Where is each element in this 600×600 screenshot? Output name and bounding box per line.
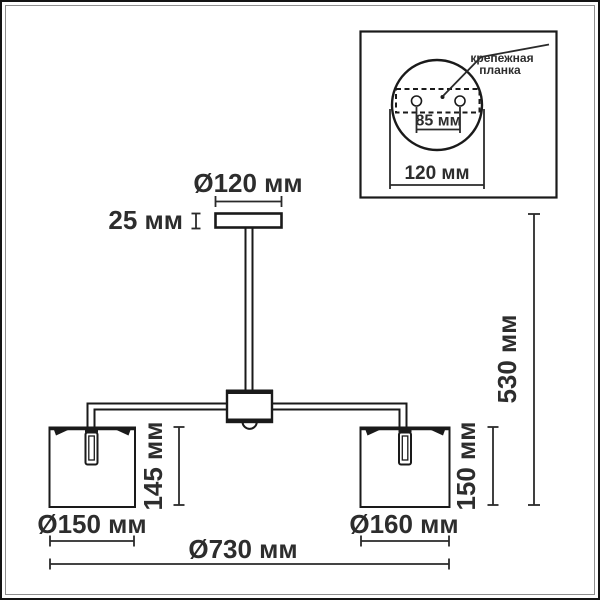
- canopy-plate: [216, 214, 282, 228]
- right-arm-inner-line: [273, 410, 400, 428]
- dim-fixture-width: Ø730 мм: [50, 534, 449, 570]
- dim-right-shade-height: 150 мм: [451, 421, 499, 510]
- ceiling-rod: [246, 227, 253, 391]
- fixture-drawing: [50, 214, 450, 508]
- plate-width-label: 120 мм: [404, 163, 469, 184]
- hole-spacing-label: 85 мм: [416, 113, 462, 130]
- screw-hole-left: [412, 96, 422, 106]
- dim-right-shade-diameter: Ø160 мм: [349, 509, 458, 547]
- left-shade-diameter-label: Ø150 мм: [37, 509, 146, 539]
- right-shade-diameter-label: Ø160 мм: [349, 509, 458, 539]
- ceiling-plate-circle: [392, 60, 482, 150]
- diagram-canvas: Ø120 мм 25 мм 145 мм 150 мм: [2, 2, 600, 600]
- dim-left-shade-diameter: Ø150 мм: [37, 509, 146, 547]
- canopy-diameter-label: Ø120 мм: [193, 168, 302, 198]
- bracket-callout-label-line2: планка: [479, 63, 521, 77]
- left-shade-height-label: 145 мм: [138, 421, 168, 510]
- right-shade-height-label: 150 мм: [451, 421, 481, 510]
- fixture-width-label: Ø730 мм: [188, 534, 297, 564]
- right-arm-outer-line: [273, 404, 407, 428]
- left-shade: [50, 427, 136, 507]
- screw-hole-right: [455, 96, 465, 106]
- right-shade: [361, 427, 450, 507]
- junction-knob: [243, 423, 257, 429]
- dim-canopy-height: 25 мм: [108, 205, 200, 235]
- dimension-diagram-page: Ø120 мм 25 мм 145 мм 150 мм: [0, 0, 600, 600]
- mounting-plate-inset: крепежная планка 85 мм 120 мм: [361, 32, 557, 198]
- fixture-height-label: 530 мм: [492, 314, 522, 403]
- junction-box: [227, 391, 272, 422]
- dimension-annotations: Ø120 мм 25 мм 145 мм 150 мм: [37, 168, 540, 570]
- junction-box-top-bar: [226, 390, 273, 395]
- dim-left-shade-height: 145 мм: [138, 421, 185, 510]
- canopy-height-label: 25 мм: [108, 205, 183, 235]
- dim-fixture-height: 530 мм: [492, 214, 540, 505]
- junction-box-bottom-bar: [226, 419, 273, 424]
- dim-canopy-diameter: Ø120 мм: [193, 168, 302, 207]
